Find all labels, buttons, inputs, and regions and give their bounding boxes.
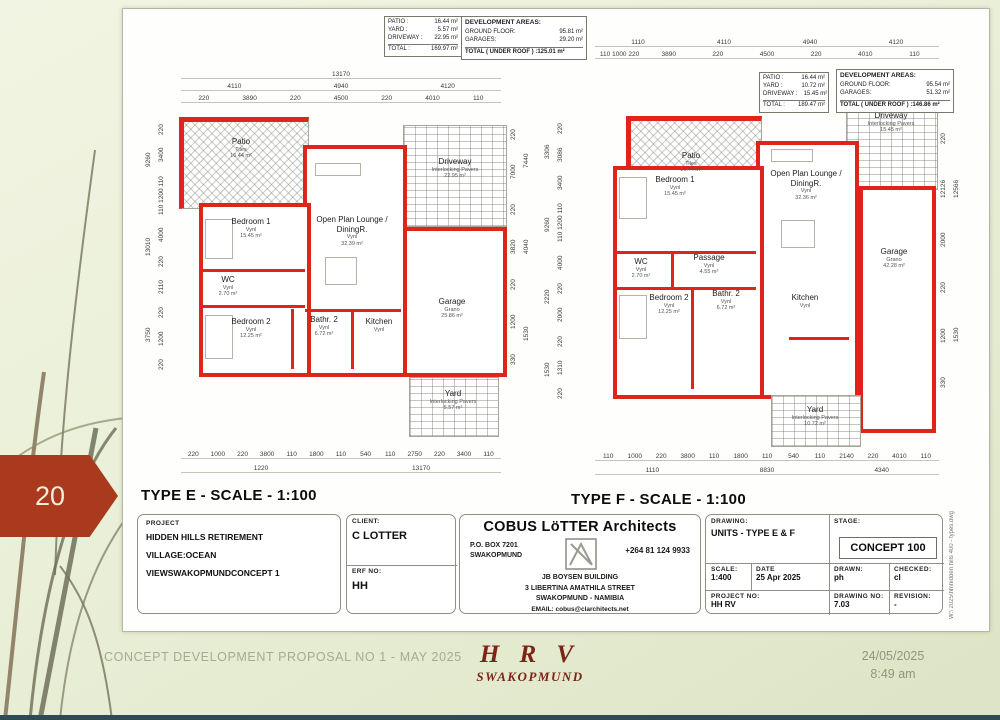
list-item: 220 <box>558 388 569 399</box>
room-label-line: Patio <box>651 151 731 161</box>
list-item: 7440 <box>524 153 535 167</box>
list-item: 1800 <box>304 452 329 459</box>
room-label-line: 10.72 m² <box>773 421 857 428</box>
room-label-kitchen: KitchenVynl <box>355 317 403 333</box>
list-item: 13170 <box>341 466 501 473</box>
room-label-line: Vynl <box>297 325 351 332</box>
room-label-line: Grano <box>413 307 491 314</box>
list-item: 3750 <box>146 327 157 341</box>
list-item: 1200 <box>941 328 952 342</box>
stage-value-box: CONCEPT 100 <box>839 537 937 559</box>
room-label-line: Vynl <box>205 285 251 292</box>
title-block-client: CLIENT: C LOTTER ERF NO: HH <box>346 514 456 614</box>
drawing-no-value: 7.03 <box>834 600 884 609</box>
list-item: 9260 <box>146 153 157 167</box>
room-label-bedroom2: Bedroom 2Vynl12.25 m² <box>209 317 293 340</box>
summary-row: DRIVEWAY :15.45 m² <box>763 91 825 99</box>
summary-row: PATIO :16.44 m² <box>388 19 458 27</box>
list-item: 1310 <box>558 360 569 374</box>
room-label-bath2: Bathr. 2Vynl6.72 m² <box>697 289 755 312</box>
list-item: 220 <box>558 336 569 347</box>
room-label-driveway: DrivewayInterlocking Pavers15.45 m² <box>849 111 933 134</box>
list-item: 110 <box>279 452 304 459</box>
list-item: 220 <box>364 96 410 103</box>
list-item: 2140 <box>833 454 859 461</box>
development-row: GROUND FLOOR:95.81 m² <box>465 29 583 37</box>
room-label-line: Open Plan Lounge / DiningR. <box>761 169 851 188</box>
list-item: 13010 <box>146 238 157 256</box>
architect-address2: 3 LIBERTINA AMATHILA STREET <box>460 584 700 595</box>
room-label-lounge: Open Plan Lounge / DiningR.Vynl32.36 m² <box>761 169 851 201</box>
room-label-line: 15.45 m² <box>633 191 717 198</box>
list-item: 4010 <box>410 96 456 103</box>
file-path-note: W:\ 2025\hh\hidden hills 400 - types.dwg <box>949 439 955 619</box>
list-item: 110 <box>890 52 939 59</box>
room-label-line: Grano <box>863 257 925 264</box>
room-label-line: 15.45 m² <box>849 127 933 134</box>
room-label-line: Interlocking Pavers <box>413 167 497 174</box>
room-label-line: Yard <box>773 405 857 415</box>
plan-e-development-table: DEVELOPMENT AREAS: GROUND FLOOR:95.81 m²… <box>461 16 587 60</box>
room-label-line: WC <box>619 257 663 267</box>
room-label-line: Kitchen <box>355 317 403 327</box>
vertical-dimensions: 220120022021102204000110 1200 1103400220 <box>159 117 170 377</box>
summary-row: YARD :10.72 m² <box>763 83 825 91</box>
list-item: 9260 <box>545 218 556 232</box>
dimension-row: 2201000220380011018001105401102750220340… <box>181 449 501 459</box>
development-row: GARAGES:51.32 m² <box>840 90 950 98</box>
list-item: 220 <box>159 307 170 318</box>
patio-area <box>179 117 309 209</box>
room-label-wc: WCVynl2.70 m² <box>205 275 251 298</box>
interior-wall <box>789 337 849 340</box>
development-total: TOTAL ( UNDER ROOF ) :146.86 m² <box>840 100 950 110</box>
vertical-dimensions: 1530222092603306 <box>545 116 556 406</box>
room-label-bedroom1: Bedroom 1Vynl15.45 m² <box>633 175 717 198</box>
summary-row: PATIO :16.44 m² <box>763 75 825 83</box>
room-label-line: Yard <box>413 389 493 399</box>
summary-total-row: TOTAL :189.47 m² <box>763 102 825 110</box>
dimension-row: 122013170 <box>181 463 501 473</box>
drawing-sheet: PATIO :16.44 m²YARD :5.57 m²DRIVEWAY :22… <box>122 8 990 632</box>
list-item: 220 <box>941 282 952 293</box>
development-row: GROUND FLOOR:95.54 m² <box>840 82 950 90</box>
dimension-row: 1101000220380011018001105401102140220401… <box>595 451 939 461</box>
room-label-line: Interlocking Pavers <box>849 121 933 128</box>
room-label-patio: PatioTiles16.44 m² <box>201 137 281 160</box>
room-label-bedroom1: Bedroom 1Vynl15.45 m² <box>209 217 293 240</box>
room-label-line: Driveway <box>413 157 497 167</box>
list-item: 2000 <box>558 308 569 322</box>
development-row: GARAGES:29.20 m² <box>465 37 583 45</box>
development-areas-title: DEVELOPMENT AREAS: <box>840 72 950 80</box>
list-item: 4500 <box>742 52 791 59</box>
list-item: 4940 <box>288 84 395 91</box>
room-label-line: 16.44 m² <box>201 153 281 160</box>
list-item: 4340 <box>824 468 939 475</box>
plan-e-container: 13170 411049404120 220389022045002204010… <box>173 69 509 479</box>
room-label-line: Passage <box>677 253 741 263</box>
room-label-line: Open Plan Lounge / DiningR. <box>307 215 397 234</box>
list-item: 220 <box>159 124 170 135</box>
project-label: PROJECT <box>146 520 332 527</box>
room-label-line: WC <box>205 275 251 285</box>
list-item: 3800 <box>255 452 280 459</box>
list-item: 220 <box>558 284 569 295</box>
architect-pocity-line: SWAKOPMUND <box>470 551 522 561</box>
vertical-dimensions: 330120022038202207000220 <box>511 117 522 377</box>
list-item: 110 <box>701 454 727 461</box>
list-item: 220 <box>511 279 522 290</box>
list-item: 1200 <box>511 315 522 329</box>
architect-name: COBUS LöTTER Architects <box>460 519 700 535</box>
room-label-passage: PassageVynl4.55 m² <box>677 253 741 276</box>
room-label-line: 15.45 m² <box>209 233 293 240</box>
room-label-line: Bathr. 2 <box>297 315 351 325</box>
room-label-line: Vynl <box>697 299 755 306</box>
list-item: 3400 <box>452 452 477 459</box>
list-item: 4110 <box>681 40 767 47</box>
list-item: 220 <box>792 52 841 59</box>
list-item: 3890 <box>227 96 273 103</box>
erf-value: HH <box>352 580 452 592</box>
checked-value: cl <box>894 573 939 582</box>
list-item: 2000 <box>941 233 952 247</box>
room-label-wc: WCVynl2.70 m² <box>619 257 663 280</box>
list-item: 1220 <box>181 466 341 473</box>
room-label-line: Kitchen <box>773 293 837 303</box>
plan-e-summary-table: PATIO :16.44 m²YARD :5.57 m²DRIVEWAY :22… <box>384 16 462 57</box>
furniture-sofa <box>771 149 813 162</box>
list-item: 110 <box>476 452 501 459</box>
list-item: 13170 <box>181 72 501 79</box>
interior-wall <box>201 269 305 272</box>
room-label-line: Vynl <box>209 227 293 234</box>
development-total: TOTAL ( UNDER ROOF ) :125.01 m² <box>465 47 583 57</box>
page-number: 20 <box>35 481 65 512</box>
checked-label: CHECKED: <box>894 566 939 573</box>
list-item: 220 <box>860 454 886 461</box>
vertical-dimensions: 3301200220200012126220 <box>941 116 952 406</box>
project-line: CONCEPT 1 <box>231 568 280 578</box>
list-item: 540 <box>353 452 378 459</box>
room-label-line: Vynl <box>633 185 717 192</box>
list-item: 2750 <box>402 452 427 459</box>
vertical-dimensions: 3750130109260 <box>146 117 157 377</box>
list-item: 12126 <box>941 179 952 197</box>
list-item: 330 <box>941 378 952 389</box>
room-label-line: Interlocking Pavers <box>413 399 493 406</box>
list-item: 220 <box>159 256 170 267</box>
title-block-project: PROJECT HIDDEN HILLS RETIREMENT VILLAGE:… <box>137 514 341 614</box>
erf-label: ERF NO: <box>352 568 452 575</box>
room-label-line: Bedroom 1 <box>209 217 293 227</box>
summary-row: YARD :5.57 m² <box>388 27 458 35</box>
project-no-label: PROJECT NO: <box>711 593 824 600</box>
list-item: 330 <box>511 354 522 365</box>
room-label-line: Vynl <box>761 188 851 195</box>
room-label-bath2: Bathr. 2Vynl6.72 m² <box>297 315 351 338</box>
list-item: 4000 <box>159 228 170 242</box>
architect-pobox: P.O. BOX 7201 SWAKOPMUND <box>470 541 522 561</box>
list-item: 3306 <box>545 145 556 159</box>
list-item: 1000 <box>206 452 231 459</box>
list-item: 3890 <box>644 52 693 59</box>
room-label-line: Vynl <box>619 267 663 274</box>
list-item: 3086 <box>558 147 569 161</box>
room-label-garage: GarageGrano42.28 m² <box>863 247 925 270</box>
list-item: 4120 <box>394 84 501 91</box>
list-item: 110 <box>754 454 780 461</box>
drawn-label: DRAWN: <box>834 566 884 573</box>
room-label-lounge: Open Plan Lounge / DiningR.Vynl32.39 m² <box>307 215 397 247</box>
list-item: 220 <box>181 96 227 103</box>
list-item: 3400 <box>558 175 569 189</box>
interior-wall <box>671 251 674 290</box>
dimension-row: 411049404120 <box>181 81 501 91</box>
revision-label: REVISION: <box>894 593 939 600</box>
revision-value: - <box>894 600 939 609</box>
list-item: 220 <box>159 359 170 370</box>
title-block-drawing-grid: DRAWING: UNITS - TYPE E & F STAGE: CONCE… <box>705 514 943 614</box>
room-label-line: Vynl <box>677 263 741 270</box>
list-item: 4000 <box>558 256 569 270</box>
list-item: 4120 <box>853 40 939 47</box>
list-item: 3400 <box>159 148 170 162</box>
list-item: 110 1200 110 <box>558 203 569 242</box>
dimension-row: 111088304340 <box>595 465 939 475</box>
grass-decoration <box>0 0 140 720</box>
interior-wall <box>351 309 354 369</box>
project-line: SWAKOPMUND <box>168 568 231 578</box>
vertical-dimensions: 220131022020002204000110 1200 1103400308… <box>558 116 569 406</box>
room-label-line: 25.86 m² <box>413 313 491 320</box>
room-label-line: Bedroom 2 <box>209 317 293 327</box>
list-item: 1530 <box>954 327 965 341</box>
room-label-line: Garage <box>413 297 491 307</box>
footer-time: 8:49 am <box>838 666 948 684</box>
room-label-line: Patio <box>201 137 281 147</box>
list-item: 220 <box>648 454 674 461</box>
project-no-value: HH RV <box>711 600 824 609</box>
footer-date: 24/05/2025 <box>838 648 948 666</box>
hrv-logo-subtext: SWAKOPMUND <box>450 669 610 685</box>
list-item: 3800 <box>674 454 700 461</box>
list-item: 4940 <box>767 40 853 47</box>
room-label-patio: PatioTiles16.44 m² <box>651 151 731 174</box>
room-label-line: 6.72 m² <box>697 305 755 312</box>
room-label-line: Bathr. 2 <box>697 289 755 299</box>
architect-phone: +264 81 124 9933 <box>625 545 690 556</box>
room-label-line: 16.44 m² <box>651 167 731 174</box>
list-item: 220 <box>558 123 569 134</box>
list-item: 1800 <box>727 454 753 461</box>
date-label: DATE <box>756 566 824 573</box>
list-item: 12566 <box>954 180 965 198</box>
vertical-dimensions: 153040407440 <box>524 117 535 377</box>
room-label-line: 22.95 m² <box>413 173 497 180</box>
room-label-line: Interlocking Pavers <box>773 415 857 422</box>
dimension-row: 13170 <box>181 69 501 79</box>
list-item: 4500 <box>318 96 364 103</box>
list-item: 110 1200 110 <box>159 176 170 215</box>
furniture-sofa <box>315 163 361 176</box>
room-label-yard: YardInterlocking Pavers10.72 m² <box>773 405 857 428</box>
list-item: 4010 <box>841 52 890 59</box>
list-item: 220 <box>272 96 318 103</box>
stage-label: STAGE: <box>834 518 939 525</box>
room-label-driveway: DrivewayInterlocking Pavers22.95 m² <box>413 157 497 180</box>
dimension-row: 220389022045002204010110 <box>181 93 501 103</box>
architect-address3: SWAKOPMUND - NAMIBIA <box>460 594 700 605</box>
list-item: 2220 <box>545 290 556 304</box>
date-value: 25 Apr 2025 <box>756 573 824 582</box>
architect-pobox-line: P.O. BOX 7201 <box>470 541 522 551</box>
room-label-line: 6.72 m² <box>297 331 351 338</box>
room-label-line: Vynl <box>209 327 293 334</box>
plan-e-title: TYPE E - SCALE - 1:100 <box>141 487 317 504</box>
room-label-line: 32.36 m² <box>761 195 851 202</box>
list-item: 2110 <box>159 280 170 294</box>
garage-area <box>859 186 936 433</box>
list-item: 110 <box>329 452 354 459</box>
list-item: 4010 <box>886 454 912 461</box>
room-label-line: 2.70 m² <box>619 273 663 280</box>
dimension-row: 1110411049404120 <box>595 37 939 47</box>
list-item: 4040 <box>524 240 535 254</box>
list-item: 1530 <box>524 326 535 340</box>
list-item: 220 <box>230 452 255 459</box>
drawing-no-label: DRAWING NO: <box>834 593 884 600</box>
list-item: 8830 <box>710 468 825 475</box>
room-label-garage: GarageGrano25.86 m² <box>413 297 491 320</box>
architect-logo-icon <box>564 537 598 571</box>
footer-datetime: 24/05/2025 8:49 am <box>838 648 948 683</box>
room-label-line: 32.39 m² <box>307 241 397 248</box>
client-label: CLIENT: <box>352 518 452 525</box>
development-areas-title: DEVELOPMENT AREAS: <box>465 19 583 27</box>
summary-total-row: TOTAL :169.97 m² <box>388 46 458 54</box>
list-item: 1200 <box>159 332 170 346</box>
list-item: 220 <box>693 52 742 59</box>
room-label-line: Vynl <box>307 234 397 241</box>
list-item: 110 <box>913 454 939 461</box>
furniture-dining-table <box>781 220 815 248</box>
list-item: 1110 <box>595 40 681 47</box>
room-label-line: Vynl <box>355 327 403 334</box>
room-label-kitchen: KitchenVynl <box>773 293 837 309</box>
bottom-edge-bar <box>0 715 1000 720</box>
hrv-logo-text: H R V <box>450 641 610 669</box>
list-item: 110 1000 220 <box>595 52 644 59</box>
list-item: 1530 <box>545 363 556 377</box>
title-block-architect: COBUS LöTTER Architects P.O. BOX 7201 SW… <box>459 514 701 614</box>
list-item: 220 <box>511 129 522 140</box>
list-item: 220 <box>941 134 952 145</box>
list-item: 110 <box>807 454 833 461</box>
room-label-line: 2.70 m² <box>205 291 251 298</box>
room-label-line: Tiles <box>651 161 731 168</box>
drawing-label: DRAWING: <box>711 518 824 525</box>
list-item: 4110 <box>181 84 288 91</box>
vertical-dimensions: 153012566 <box>954 116 965 406</box>
list-item: 220 <box>181 452 206 459</box>
furniture-dining-table <box>325 257 357 285</box>
list-item: 540 <box>780 454 806 461</box>
plan-f-development-table: DEVELOPMENT AREAS: GROUND FLOOR:95.54 m²… <box>836 69 954 113</box>
room-label-line: Tiles <box>201 147 281 154</box>
client-value: C LOTTER <box>352 530 452 542</box>
scale-value: 1:400 <box>711 573 746 582</box>
list-item: 220 <box>427 452 452 459</box>
list-item: 1000 <box>621 454 647 461</box>
room-label-line: 42.28 m² <box>863 263 925 270</box>
list-item: 3820 <box>511 240 522 254</box>
list-item: 110 <box>378 452 403 459</box>
plan-f-title: TYPE F - SCALE - 1:100 <box>571 491 746 508</box>
plan-f-summary-table: PATIO :16.44 m²YARD :10.72 m²DRIVEWAY :1… <box>759 72 829 113</box>
interior-wall <box>201 305 305 308</box>
list-item: 110 <box>455 96 501 103</box>
room-label-line: 12.25 m² <box>209 333 293 340</box>
scale-label: SCALE: <box>711 566 746 573</box>
drawn-value: ph <box>834 573 884 582</box>
list-item: 1110 <box>595 468 710 475</box>
footer-proposal-text: CONCEPT DEVELOPMENT PROPOSAL NO 1 - MAY … <box>104 650 462 664</box>
room-label-yard: YardInterlocking Pavers5.57 m² <box>413 389 493 412</box>
room-label-line: Garage <box>863 247 925 257</box>
architect-address1: JB BOYSEN BUILDING <box>460 573 700 584</box>
drawing-value: UNITS - TYPE E & F <box>711 528 824 538</box>
room-label-line: Bedroom 1 <box>633 175 717 185</box>
list-item: 220 <box>511 204 522 215</box>
room-label-line: Vynl <box>773 303 837 310</box>
room-label-line: 4.55 m² <box>677 269 741 276</box>
list-item: 110 <box>595 454 621 461</box>
architect-email: EMAIL: cobus@clarchitects.net <box>460 605 700 615</box>
room-label-line: 5.57 m² <box>413 405 493 412</box>
dimension-row: 110 1000 220389022045002204010110 <box>595 49 939 59</box>
hrv-logo: H R V SWAKOPMUND <box>450 641 610 685</box>
list-item: 7000 <box>511 165 522 179</box>
summary-row: DRIVEWAY :22.95 m² <box>388 35 458 43</box>
